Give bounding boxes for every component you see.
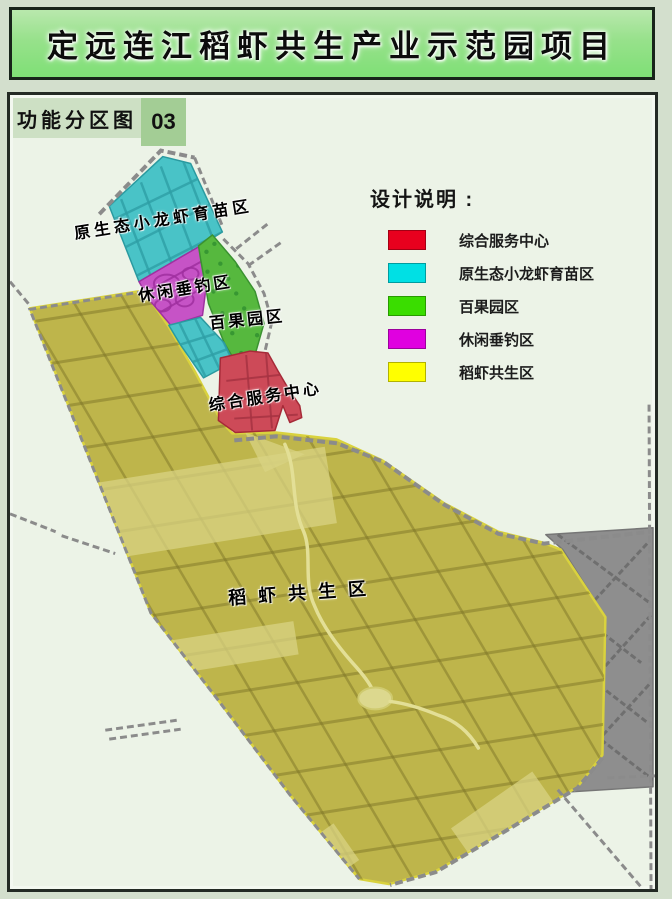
map-panel: 功能分区图 03 设计说明 : 综合服务中心 原生态小龙虾育苗区 百果园区 休闲… <box>7 92 658 892</box>
page-title-banner: 定远连江稻虾共生产业示范园项目 <box>9 7 655 80</box>
legend-swatch <box>388 263 426 283</box>
legend-item-label: 稻虾共生区 <box>459 362 534 383</box>
pond <box>358 688 392 710</box>
legend-item-label: 百果园区 <box>459 296 519 317</box>
page: { "header": { "title": "定远连江稻虾共生产业示范园项目"… <box>0 0 672 899</box>
map-type-chip: 功能分区图 <box>13 98 141 138</box>
page-title: 定远连江稻虾共生产业示范园项目 <box>47 21 617 66</box>
legend-item: 稻虾共生区 <box>370 362 620 382</box>
legend-swatch <box>388 362 426 382</box>
legend-item-label: 综合服务中心 <box>459 230 549 251</box>
legend-swatch <box>388 329 426 349</box>
legend-item-label: 原生态小龙虾育苗区 <box>459 263 594 284</box>
legend-item: 百果园区 <box>370 296 620 316</box>
legend-item: 综合服务中心 <box>370 230 620 250</box>
legend-swatch <box>388 230 426 250</box>
legend-item-label: 休闲垂钓区 <box>459 329 534 350</box>
legend-item: 原生态小龙虾育苗区 <box>370 263 620 283</box>
map-number-chip: 03 <box>141 98 186 146</box>
map-header: 功能分区图 03 <box>13 98 186 146</box>
legend-swatch <box>388 296 426 316</box>
legend-item: 休闲垂钓区 <box>370 329 620 349</box>
legend: 设计说明 : 综合服务中心 原生态小龙虾育苗区 百果园区 休闲垂钓区 稻虾共生区 <box>370 183 620 395</box>
legend-title: 设计说明 : <box>370 183 620 212</box>
